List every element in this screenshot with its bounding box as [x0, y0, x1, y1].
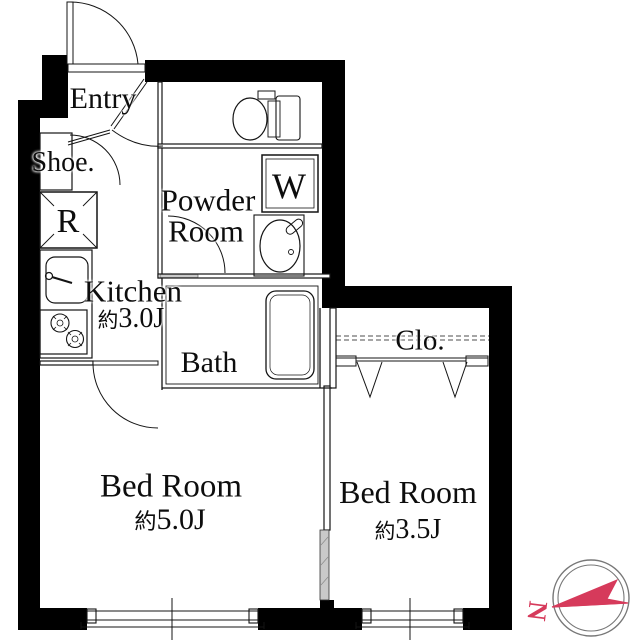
wall-mid-horizontal — [345, 286, 512, 308]
entry-label: Entry — [70, 84, 137, 114]
kitchen-size: 約3.0J — [98, 305, 165, 333]
compass-north-label: N — [522, 600, 551, 623]
powder-room-label-line2: Room — [168, 216, 244, 247]
powder-room-label-line1: Powder — [161, 185, 256, 216]
wall-closet-left — [330, 308, 336, 388]
compass-needle-icon — [552, 580, 628, 607]
wall-entry-stub — [42, 55, 68, 118]
window-bedroom-main[interactable] — [81, 598, 264, 640]
wall-bottom-center — [258, 608, 362, 630]
fridge-label: R — [57, 205, 80, 239]
washbasin — [254, 215, 304, 276]
wall-top — [145, 60, 345, 82]
wall-right — [489, 286, 512, 630]
compass — [552, 560, 629, 636]
wall-left — [18, 118, 40, 630]
shoe-label: Shoe. — [32, 149, 95, 177]
wall-bottom-right — [463, 608, 512, 630]
wall-bedroom-partition — [324, 386, 330, 530]
faucet-icon — [285, 218, 305, 236]
bedroom-second-label: Bed Room — [339, 476, 477, 508]
burner-icon — [67, 331, 84, 348]
floor-plan: Entry Shoe. R Powder Room W Kitchen 約3.0… — [0, 0, 640, 640]
entry-door[interactable] — [67, 2, 145, 72]
wall-toilet-left — [158, 82, 162, 148]
wall-toilet-bottom — [158, 144, 322, 148]
sliding-doors — [160, 275, 329, 601]
closet-label: Clo. — [395, 327, 444, 356]
kitchen-label: Kitchen — [84, 276, 182, 307]
washer-label: W — [272, 168, 306, 204]
kitchen-sink — [46, 257, 88, 303]
window-bedroom-second[interactable] — [356, 598, 469, 640]
toilet-icon — [233, 91, 300, 140]
bath-label: Bath — [181, 348, 238, 378]
wall-kitchen-bedroom — [40, 361, 93, 365]
bedroom-door[interactable] — [93, 361, 158, 428]
hanger-icon — [443, 362, 467, 397]
burner-icon — [51, 314, 69, 332]
wall-right-upper — [322, 60, 345, 308]
bedroom-main-size: 約5.0J — [134, 505, 205, 535]
hanger-icon — [357, 362, 382, 397]
bedroom-main-label: Bed Room — [100, 471, 242, 504]
bedroom-second-size: 約3.5J — [375, 516, 442, 544]
wall-partition-foot — [320, 600, 334, 610]
bathtub — [266, 291, 314, 379]
